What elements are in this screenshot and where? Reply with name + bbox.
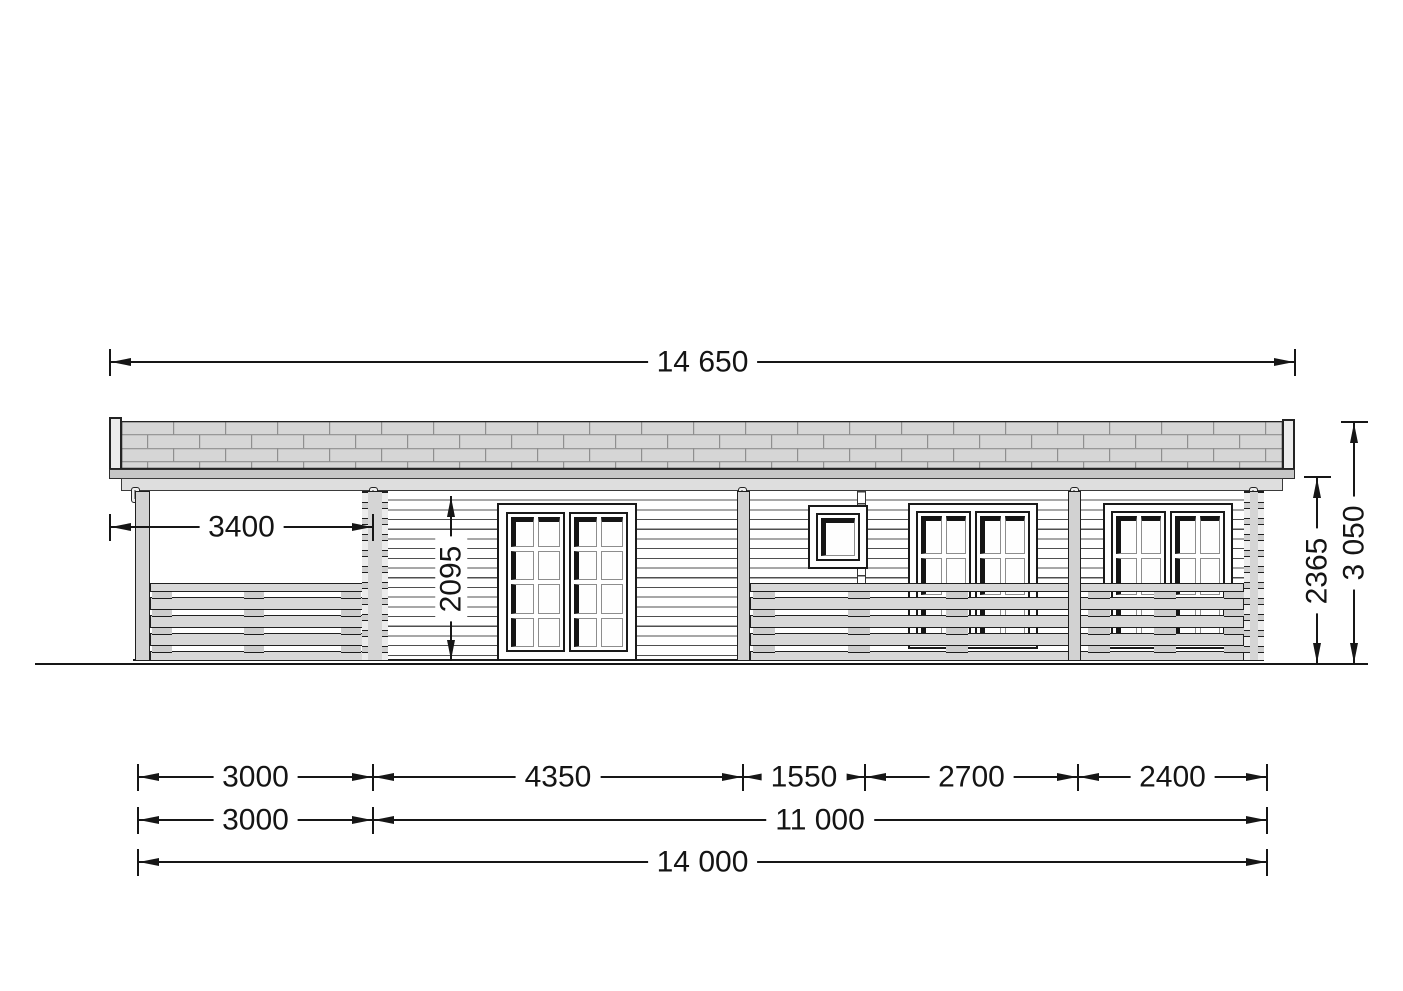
dim-label: 2365	[1301, 528, 1333, 613]
dim-porch-width: 3000	[138, 819, 373, 821]
dim-section-1: 3000	[138, 776, 373, 778]
dim-section-4: 2700	[865, 776, 1078, 778]
dim-label: 2400	[1130, 761, 1215, 793]
dim-label: 3000	[213, 804, 298, 836]
dim-overall-width: 14 650	[110, 361, 1295, 363]
terrace-post-left	[737, 491, 750, 661]
corner-log-joint-left	[362, 491, 388, 661]
porch-post	[135, 491, 150, 661]
terrace-post-mid	[1068, 491, 1081, 661]
ground-line	[35, 663, 1368, 665]
dim-label: 1550	[762, 761, 847, 793]
door-leaf-left	[506, 512, 565, 652]
dim-section-3: 1550	[743, 776, 865, 778]
dim-wall-height: 2365	[1316, 477, 1318, 664]
small-window-sash	[816, 513, 860, 561]
roof-edge-board-right	[1282, 419, 1295, 470]
roof-shingles	[121, 421, 1283, 469]
roof-soffit-beam	[121, 478, 1283, 491]
dim-label: 4350	[516, 761, 601, 793]
dim-section-5: 2400	[1078, 776, 1267, 778]
terrace-railing	[750, 583, 1244, 661]
door-leaf-right	[569, 512, 628, 652]
dim-cabin-width: 11 000	[373, 819, 1267, 821]
dim-porch-depth: 3400	[110, 526, 373, 528]
dim-label: 2095	[435, 536, 467, 621]
corner-log-joint-right	[1244, 491, 1264, 661]
dim-label: 2700	[929, 761, 1014, 793]
porch-railing	[150, 583, 363, 661]
dim-section-2: 4350	[373, 776, 743, 778]
dim-label: 3400	[199, 511, 284, 543]
dim-total-height: 3 050	[1353, 422, 1355, 664]
dim-label: 14 000	[648, 846, 758, 878]
dim-label: 3 050	[1338, 496, 1370, 589]
elevation-drawing: 14 650 3400 2095 2365 3 050 3000 4350 15…	[0, 0, 1403, 991]
dim-label: 14 650	[648, 346, 758, 378]
small-window	[808, 505, 868, 569]
dim-total-width: 14 000	[138, 861, 1267, 863]
french-door	[497, 503, 637, 661]
dim-label: 11 000	[766, 804, 874, 836]
dim-door-height: 2095	[450, 496, 452, 661]
dim-label: 3000	[213, 761, 298, 793]
